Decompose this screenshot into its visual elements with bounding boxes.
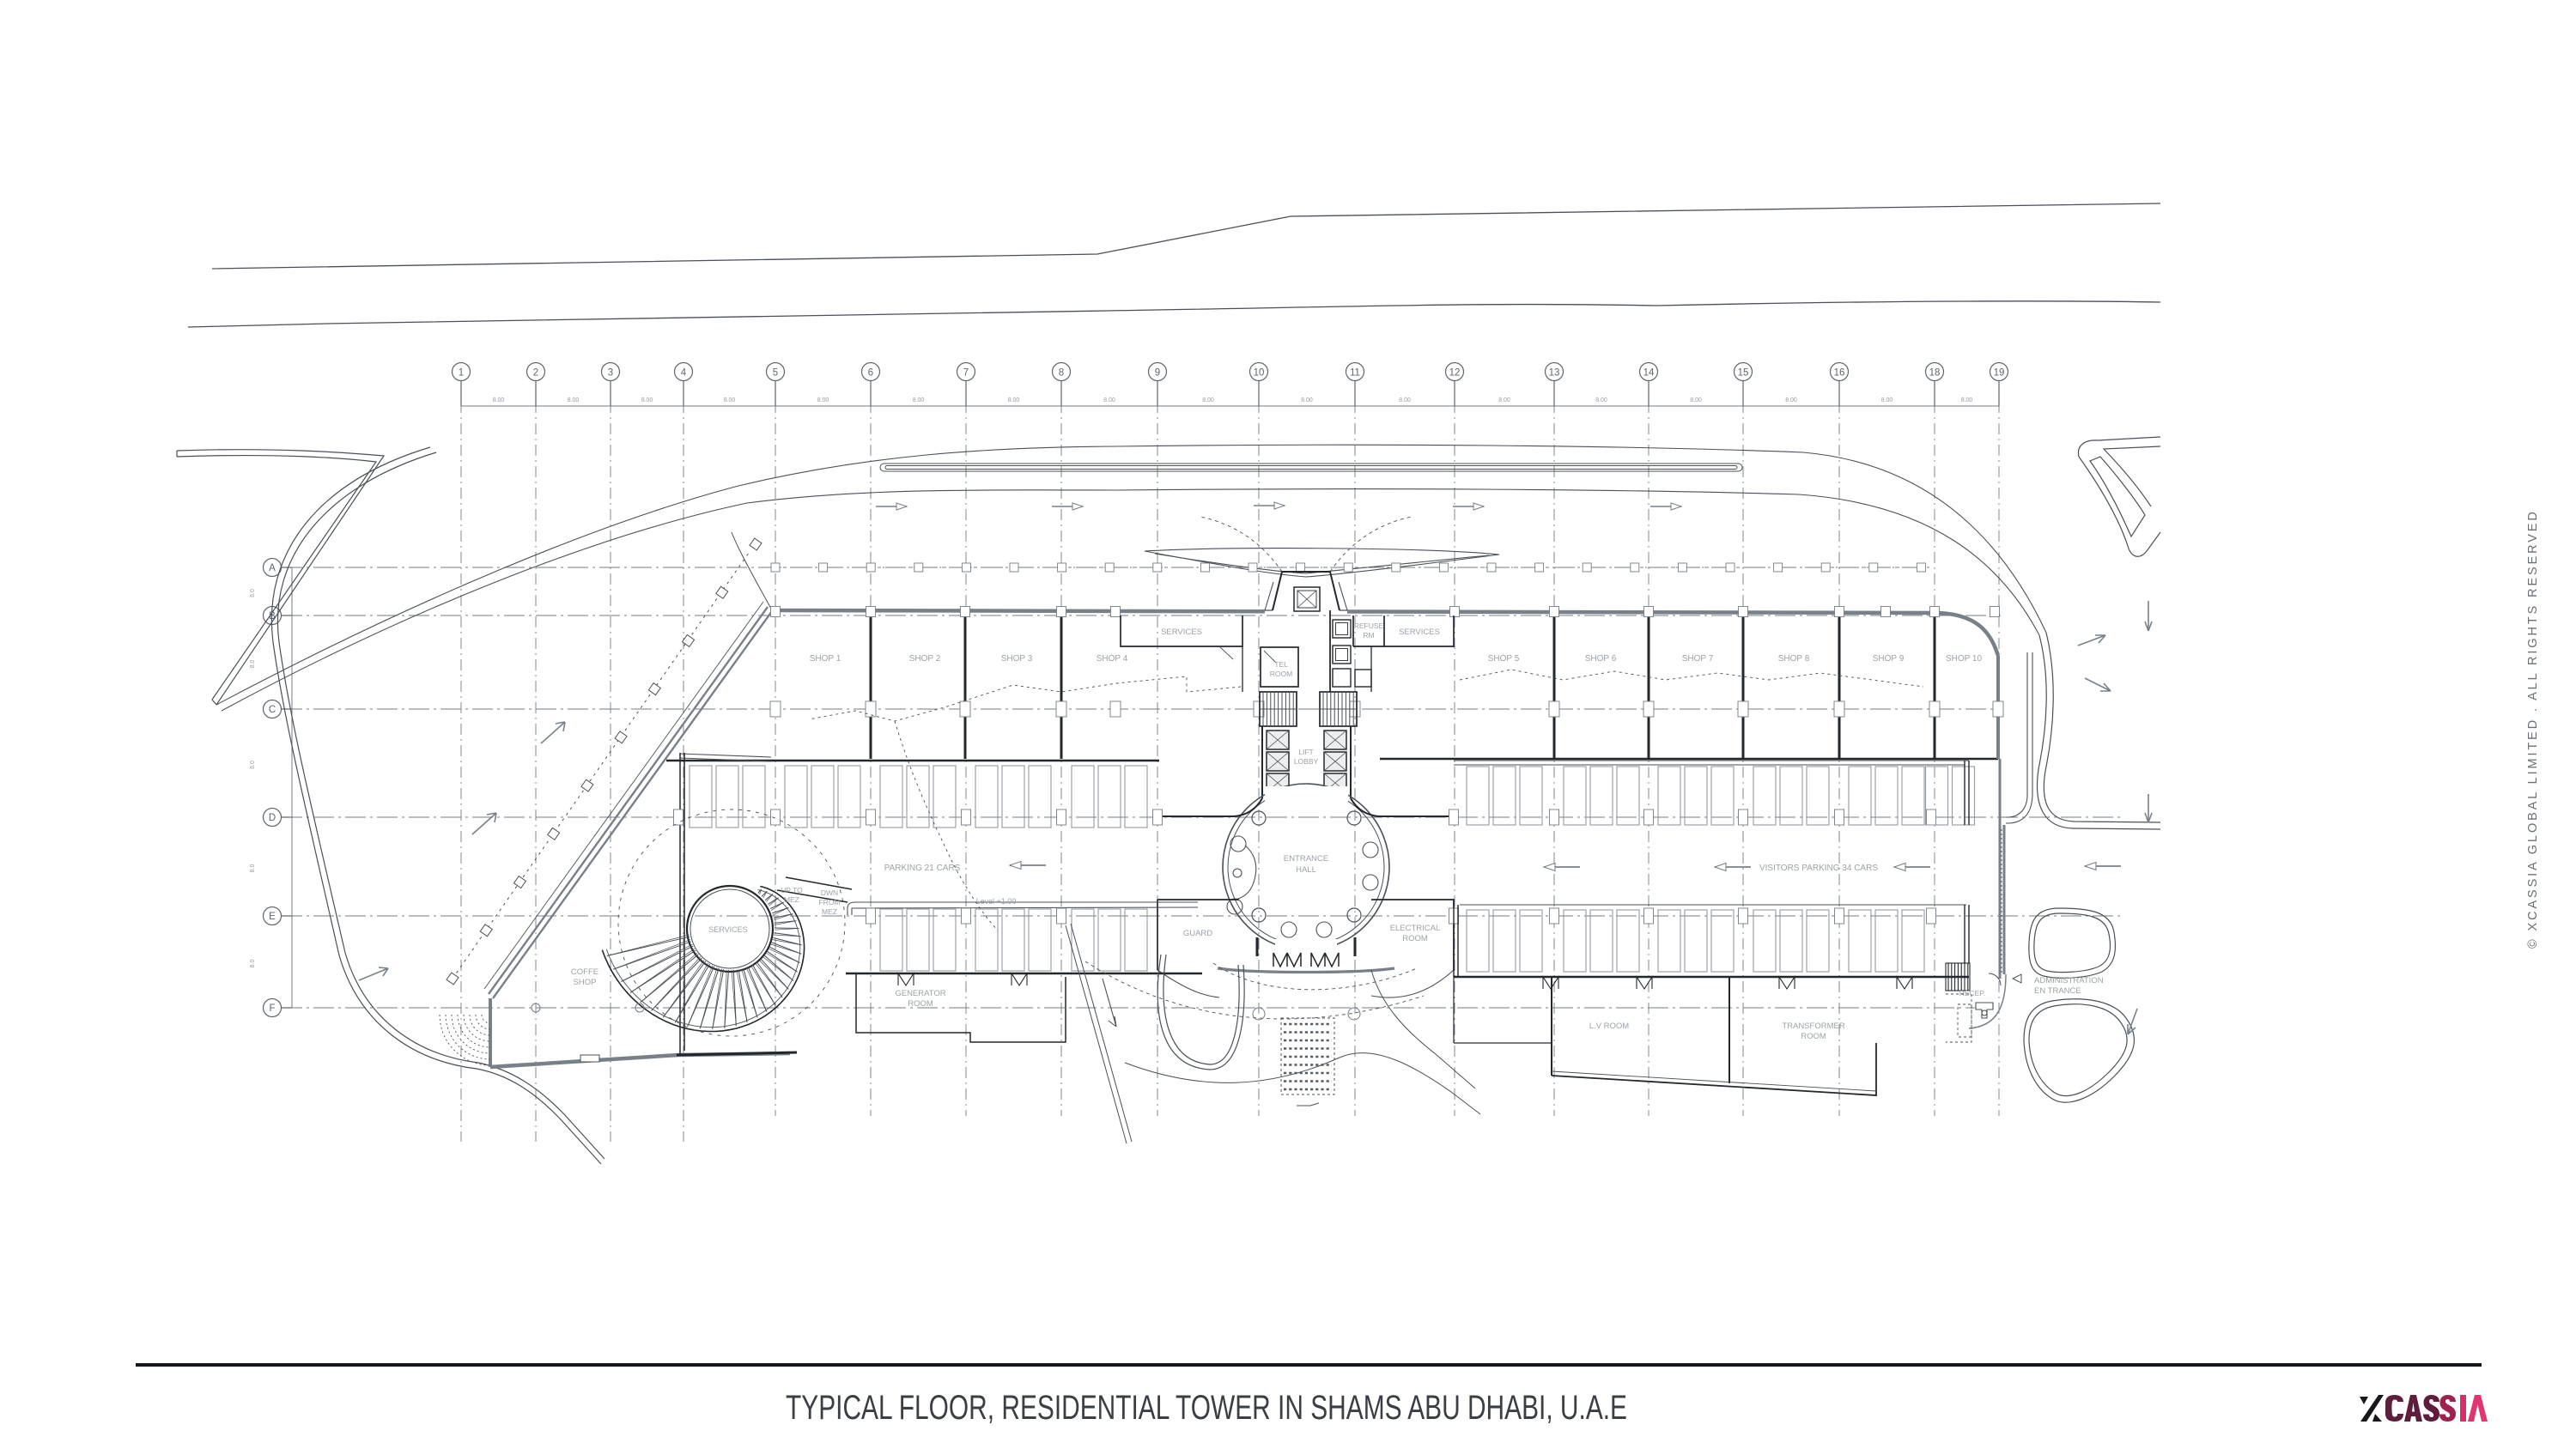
- svg-text:15: 15: [1738, 368, 1749, 379]
- svg-text:8.00: 8.00: [1961, 397, 1973, 403]
- svg-text:6: 6: [868, 368, 873, 379]
- svg-text:8.00: 8.00: [641, 397, 653, 403]
- svg-text:LIFT: LIFT: [1298, 748, 1313, 756]
- svg-text:SHOP 10: SHOP 10: [1946, 654, 1982, 664]
- svg-text:ELECTRICAL: ELECTRICAL: [1390, 924, 1441, 933]
- svg-text:3: 3: [608, 368, 613, 379]
- svg-text:RECEP.: RECEP.: [1959, 989, 1986, 997]
- svg-text:SHOP 3: SHOP 3: [1001, 654, 1033, 664]
- svg-text:8.00: 8.00: [1690, 397, 1702, 403]
- svg-text:11: 11: [1350, 368, 1360, 379]
- svg-text:8.00: 8.00: [568, 397, 580, 403]
- svg-text:8.00: 8.00: [1202, 397, 1214, 403]
- svg-text:TRANSFORMER: TRANSFORMER: [1782, 1022, 1845, 1031]
- svg-text:SHOP 4: SHOP 4: [1097, 654, 1128, 664]
- svg-text:SHOP 6: SHOP 6: [1585, 654, 1617, 664]
- svg-text:PARKING 21 CARS: PARKING 21 CARS: [884, 864, 961, 873]
- svg-text:8.0: 8.0: [250, 960, 256, 968]
- svg-text:ADMINISTRATION: ADMINISTRATION: [2034, 976, 2104, 985]
- svg-text:SHOP: SHOP: [574, 978, 597, 987]
- svg-text:8.00: 8.00: [724, 397, 736, 403]
- svg-text:C: C: [269, 705, 276, 715]
- svg-text:8: 8: [1059, 368, 1064, 379]
- svg-text:8.00: 8.00: [493, 397, 505, 403]
- svg-text:RM: RM: [1363, 631, 1374, 640]
- svg-text:ROOM: ROOM: [1801, 1032, 1826, 1041]
- svg-text:8.00: 8.00: [817, 397, 829, 403]
- svg-text:10: 10: [1254, 368, 1265, 379]
- svg-text:8.00: 8.00: [1399, 397, 1411, 403]
- svg-text:8.0: 8.0: [250, 589, 256, 597]
- svg-text:19: 19: [1994, 368, 2005, 379]
- svg-text:F: F: [269, 1003, 275, 1014]
- svg-text:© XCASSIA GLOBAL LIMITED . ALL: © XCASSIA GLOBAL LIMITED . ALL RIGHTS RE…: [2526, 509, 2540, 949]
- svg-text:8.00: 8.00: [1498, 397, 1510, 403]
- svg-text:MEZ: MEZ: [822, 907, 837, 916]
- svg-text:LOBBY: LOBBY: [1294, 757, 1319, 766]
- svg-text:E: E: [269, 912, 276, 922]
- svg-text:TYPICAL FLOOR, RESIDENTIAL TOW: TYPICAL FLOOR, RESIDENTIAL TOWER IN SHAM…: [786, 1389, 1627, 1427]
- svg-text:Level +1.00: Level +1.00: [976, 897, 1017, 906]
- svg-text:13: 13: [1549, 368, 1560, 379]
- svg-text:8.0: 8.0: [250, 864, 256, 873]
- svg-text:VISITORS PARKING 34 CARS: VISITORS PARKING 34 CARS: [1759, 864, 1878, 873]
- svg-text:D: D: [269, 813, 276, 823]
- svg-text:8.00: 8.00: [1881, 397, 1893, 403]
- svg-text:SHOP 7: SHOP 7: [1682, 654, 1714, 664]
- svg-text:SERVICES: SERVICES: [1399, 627, 1440, 637]
- svg-text:18: 18: [1929, 368, 1941, 379]
- svg-text:8.00: 8.00: [913, 397, 925, 403]
- svg-text:12: 12: [1449, 368, 1461, 379]
- svg-text:UP TO: UP TO: [781, 886, 803, 894]
- svg-text:SHOP 8: SHOP 8: [1778, 654, 1810, 664]
- svg-text:FROM: FROM: [818, 898, 840, 906]
- svg-text:MEZ: MEZ: [784, 895, 799, 904]
- svg-text:EN TRANCE: EN TRANCE: [2034, 986, 2081, 996]
- svg-text:8.0: 8.0: [250, 761, 256, 769]
- svg-text:L.V ROOM: L.V ROOM: [1589, 1022, 1630, 1031]
- svg-text:SHOP 1: SHOP 1: [810, 654, 841, 664]
- svg-text:COFFE: COFFE: [571, 967, 598, 977]
- svg-text:REFUSE: REFUSE: [1354, 621, 1384, 630]
- svg-text:16: 16: [1834, 368, 1845, 379]
- svg-text:8.00: 8.00: [1103, 397, 1115, 403]
- svg-text:ROOM: ROOM: [1270, 670, 1292, 678]
- svg-text:8.00: 8.00: [1785, 397, 1797, 403]
- svg-text:8.00: 8.00: [1008, 397, 1020, 403]
- svg-text:ROOM: ROOM: [908, 999, 933, 1009]
- svg-text:TEL: TEL: [1274, 660, 1288, 669]
- svg-text:7: 7: [963, 368, 969, 379]
- svg-text:SERVICES: SERVICES: [1161, 627, 1202, 637]
- svg-text:8.0: 8.0: [250, 660, 256, 669]
- svg-text:SHOP 2: SHOP 2: [909, 654, 941, 664]
- svg-text:A: A: [269, 563, 276, 573]
- svg-text:14: 14: [1643, 368, 1655, 379]
- svg-text:1: 1: [459, 368, 464, 379]
- svg-text:ENTRANCE: ENTRANCE: [1284, 854, 1328, 864]
- svg-text:8.00: 8.00: [1595, 397, 1607, 403]
- svg-text:SHOP 5: SHOP 5: [1488, 654, 1520, 664]
- svg-text:9: 9: [1155, 368, 1160, 379]
- svg-text:2: 2: [533, 368, 538, 379]
- svg-text:GUARD: GUARD: [1183, 929, 1212, 938]
- svg-text:ROOM: ROOM: [1402, 934, 1428, 943]
- svg-text:HALL: HALL: [1296, 865, 1316, 875]
- svg-text:GENERATOR: GENERATOR: [895, 989, 945, 998]
- svg-text:SHOP 9: SHOP 9: [1873, 654, 1905, 664]
- svg-text:4: 4: [681, 368, 687, 379]
- svg-text:DWN: DWN: [821, 888, 838, 897]
- svg-text:8.00: 8.00: [1301, 397, 1313, 403]
- svg-text:5: 5: [773, 368, 778, 379]
- svg-text:SERVICES: SERVICES: [708, 925, 747, 934]
